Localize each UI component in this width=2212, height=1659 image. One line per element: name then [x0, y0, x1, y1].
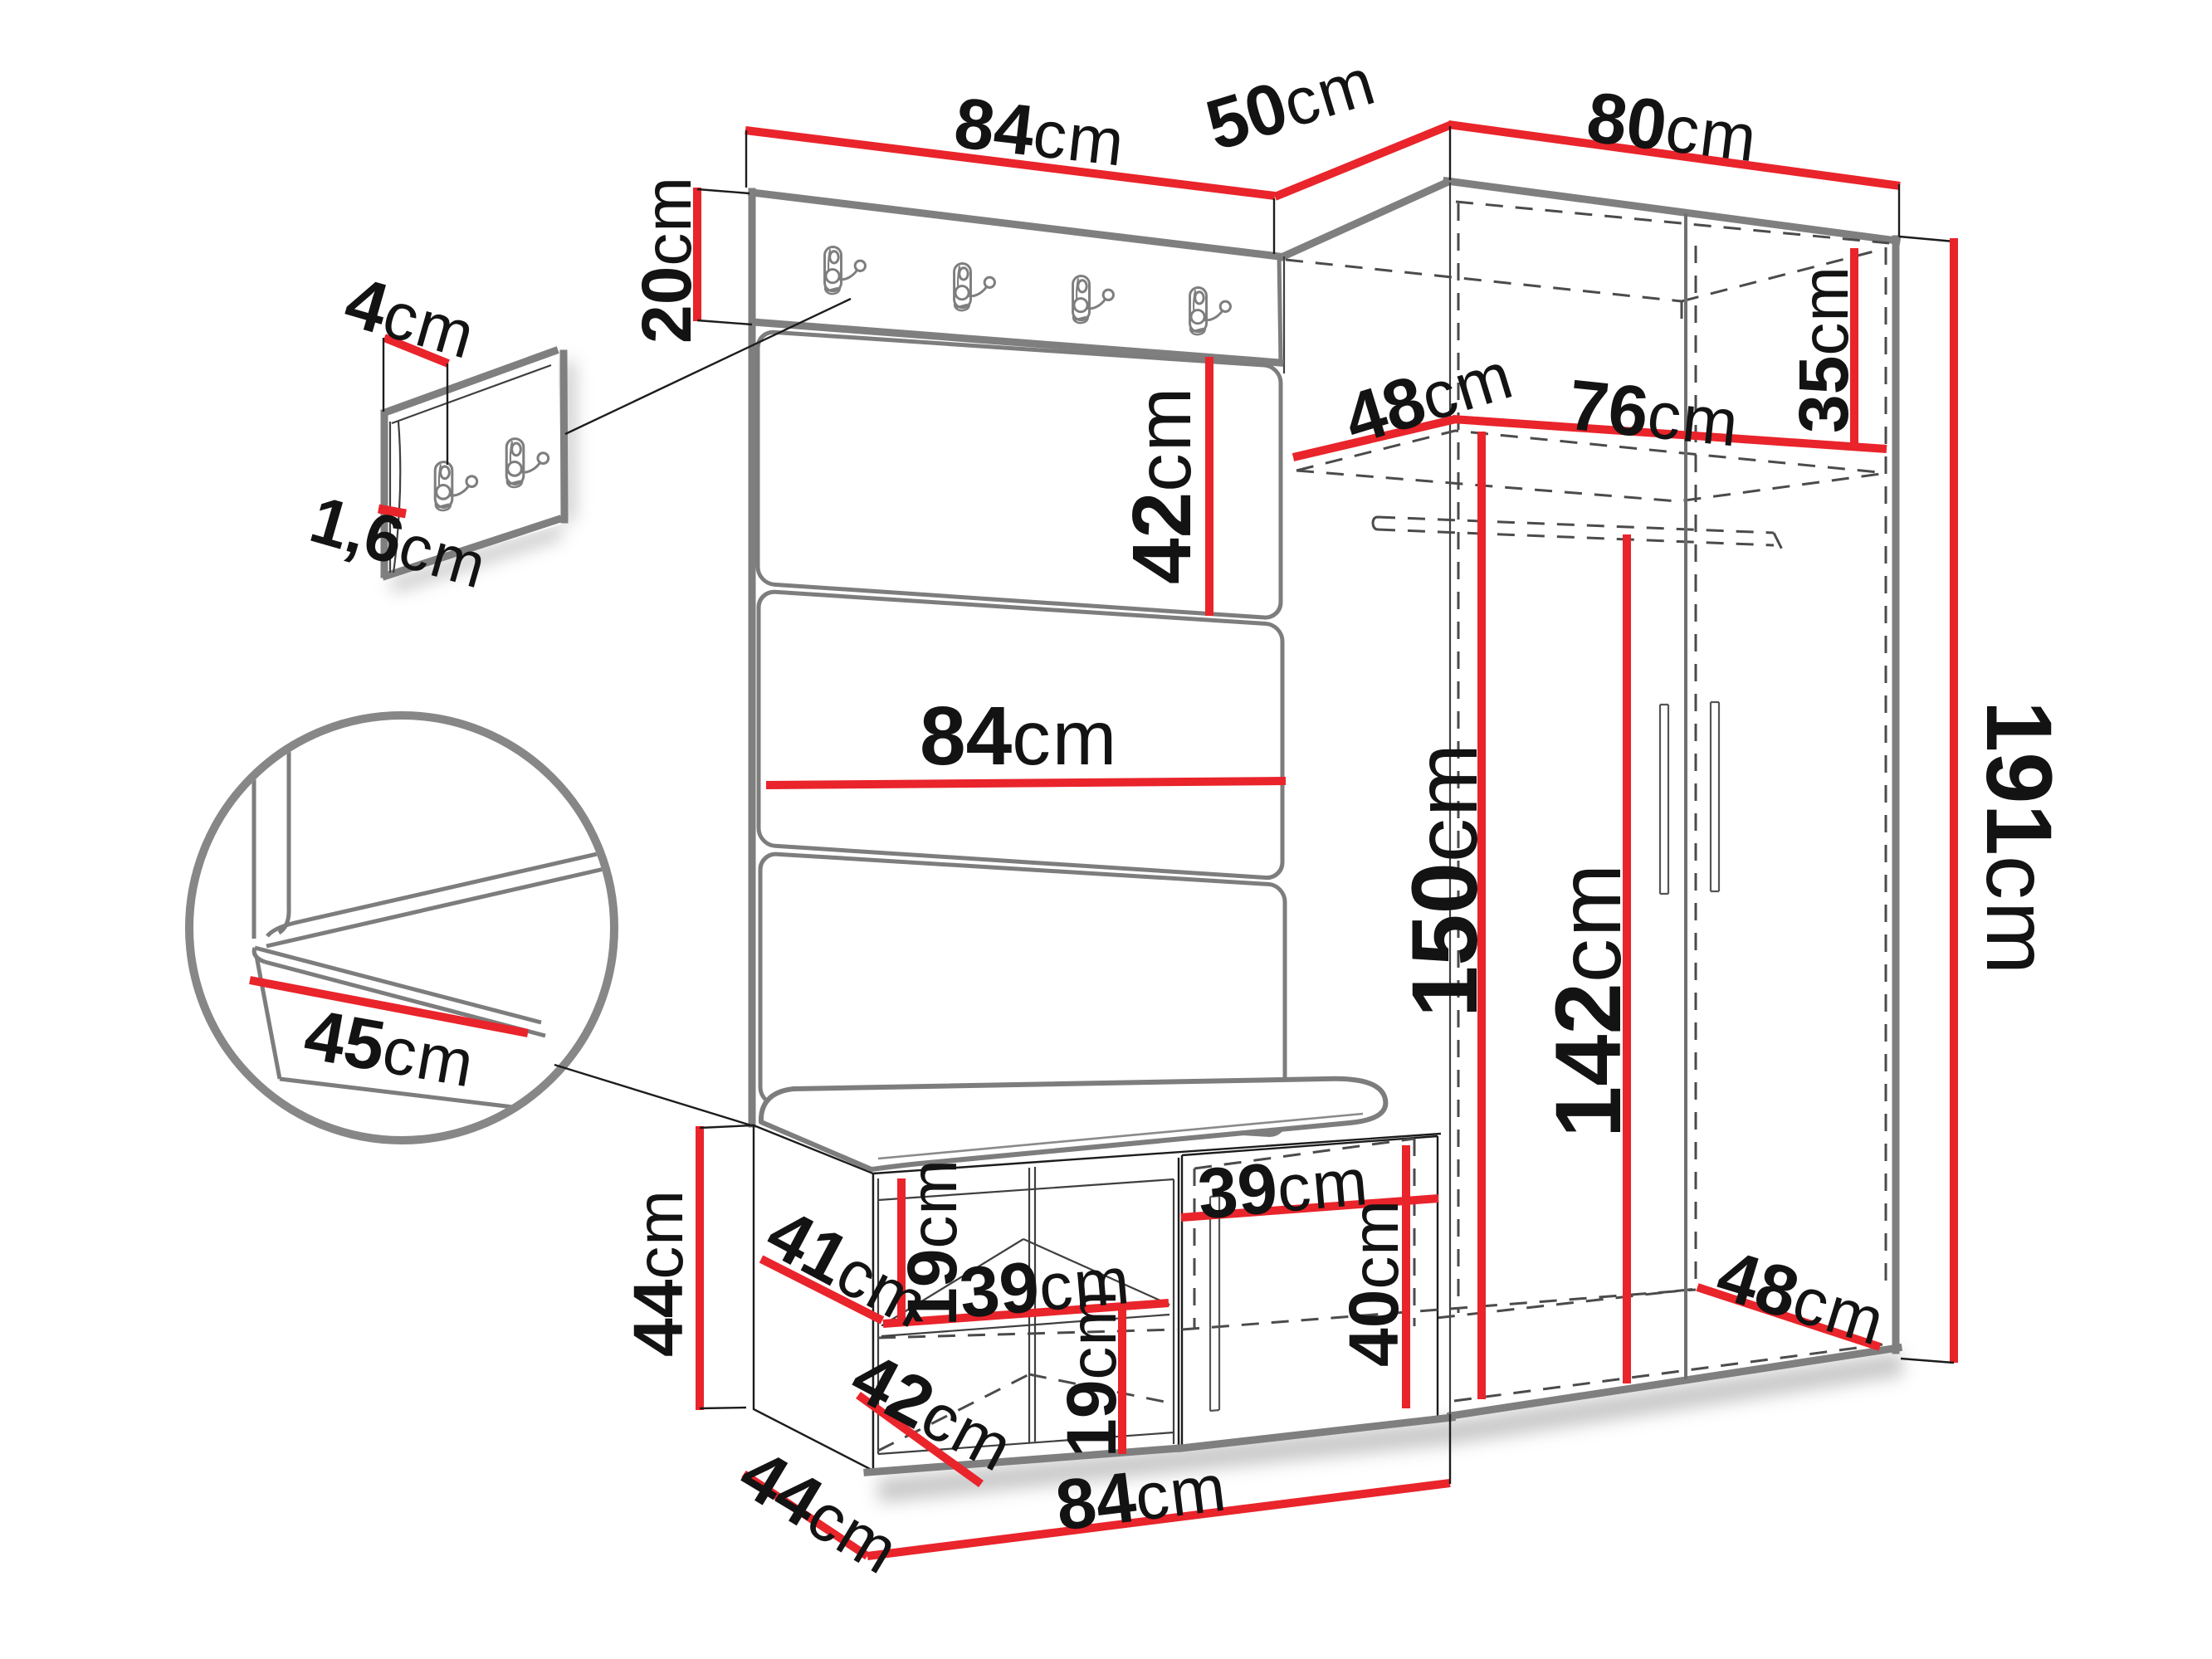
svg-text:19cm: 19cm [893, 1159, 971, 1326]
svg-text:20cm: 20cm [627, 176, 706, 344]
svg-text:142cm: 142cm [1536, 862, 1640, 1138]
svg-text:84cm: 84cm [920, 690, 1118, 783]
svg-text:35cm: 35cm [1785, 266, 1863, 433]
svg-text:150cm: 150cm [1393, 742, 1497, 1017]
svg-text:19cm: 19cm [1052, 1290, 1130, 1457]
svg-text:40cm: 40cm [1335, 1199, 1413, 1367]
svg-text:44cm: 44cm [619, 1189, 697, 1357]
svg-text:191cm: 191cm [1967, 700, 2071, 976]
svg-text:42cm: 42cm [1116, 386, 1209, 584]
